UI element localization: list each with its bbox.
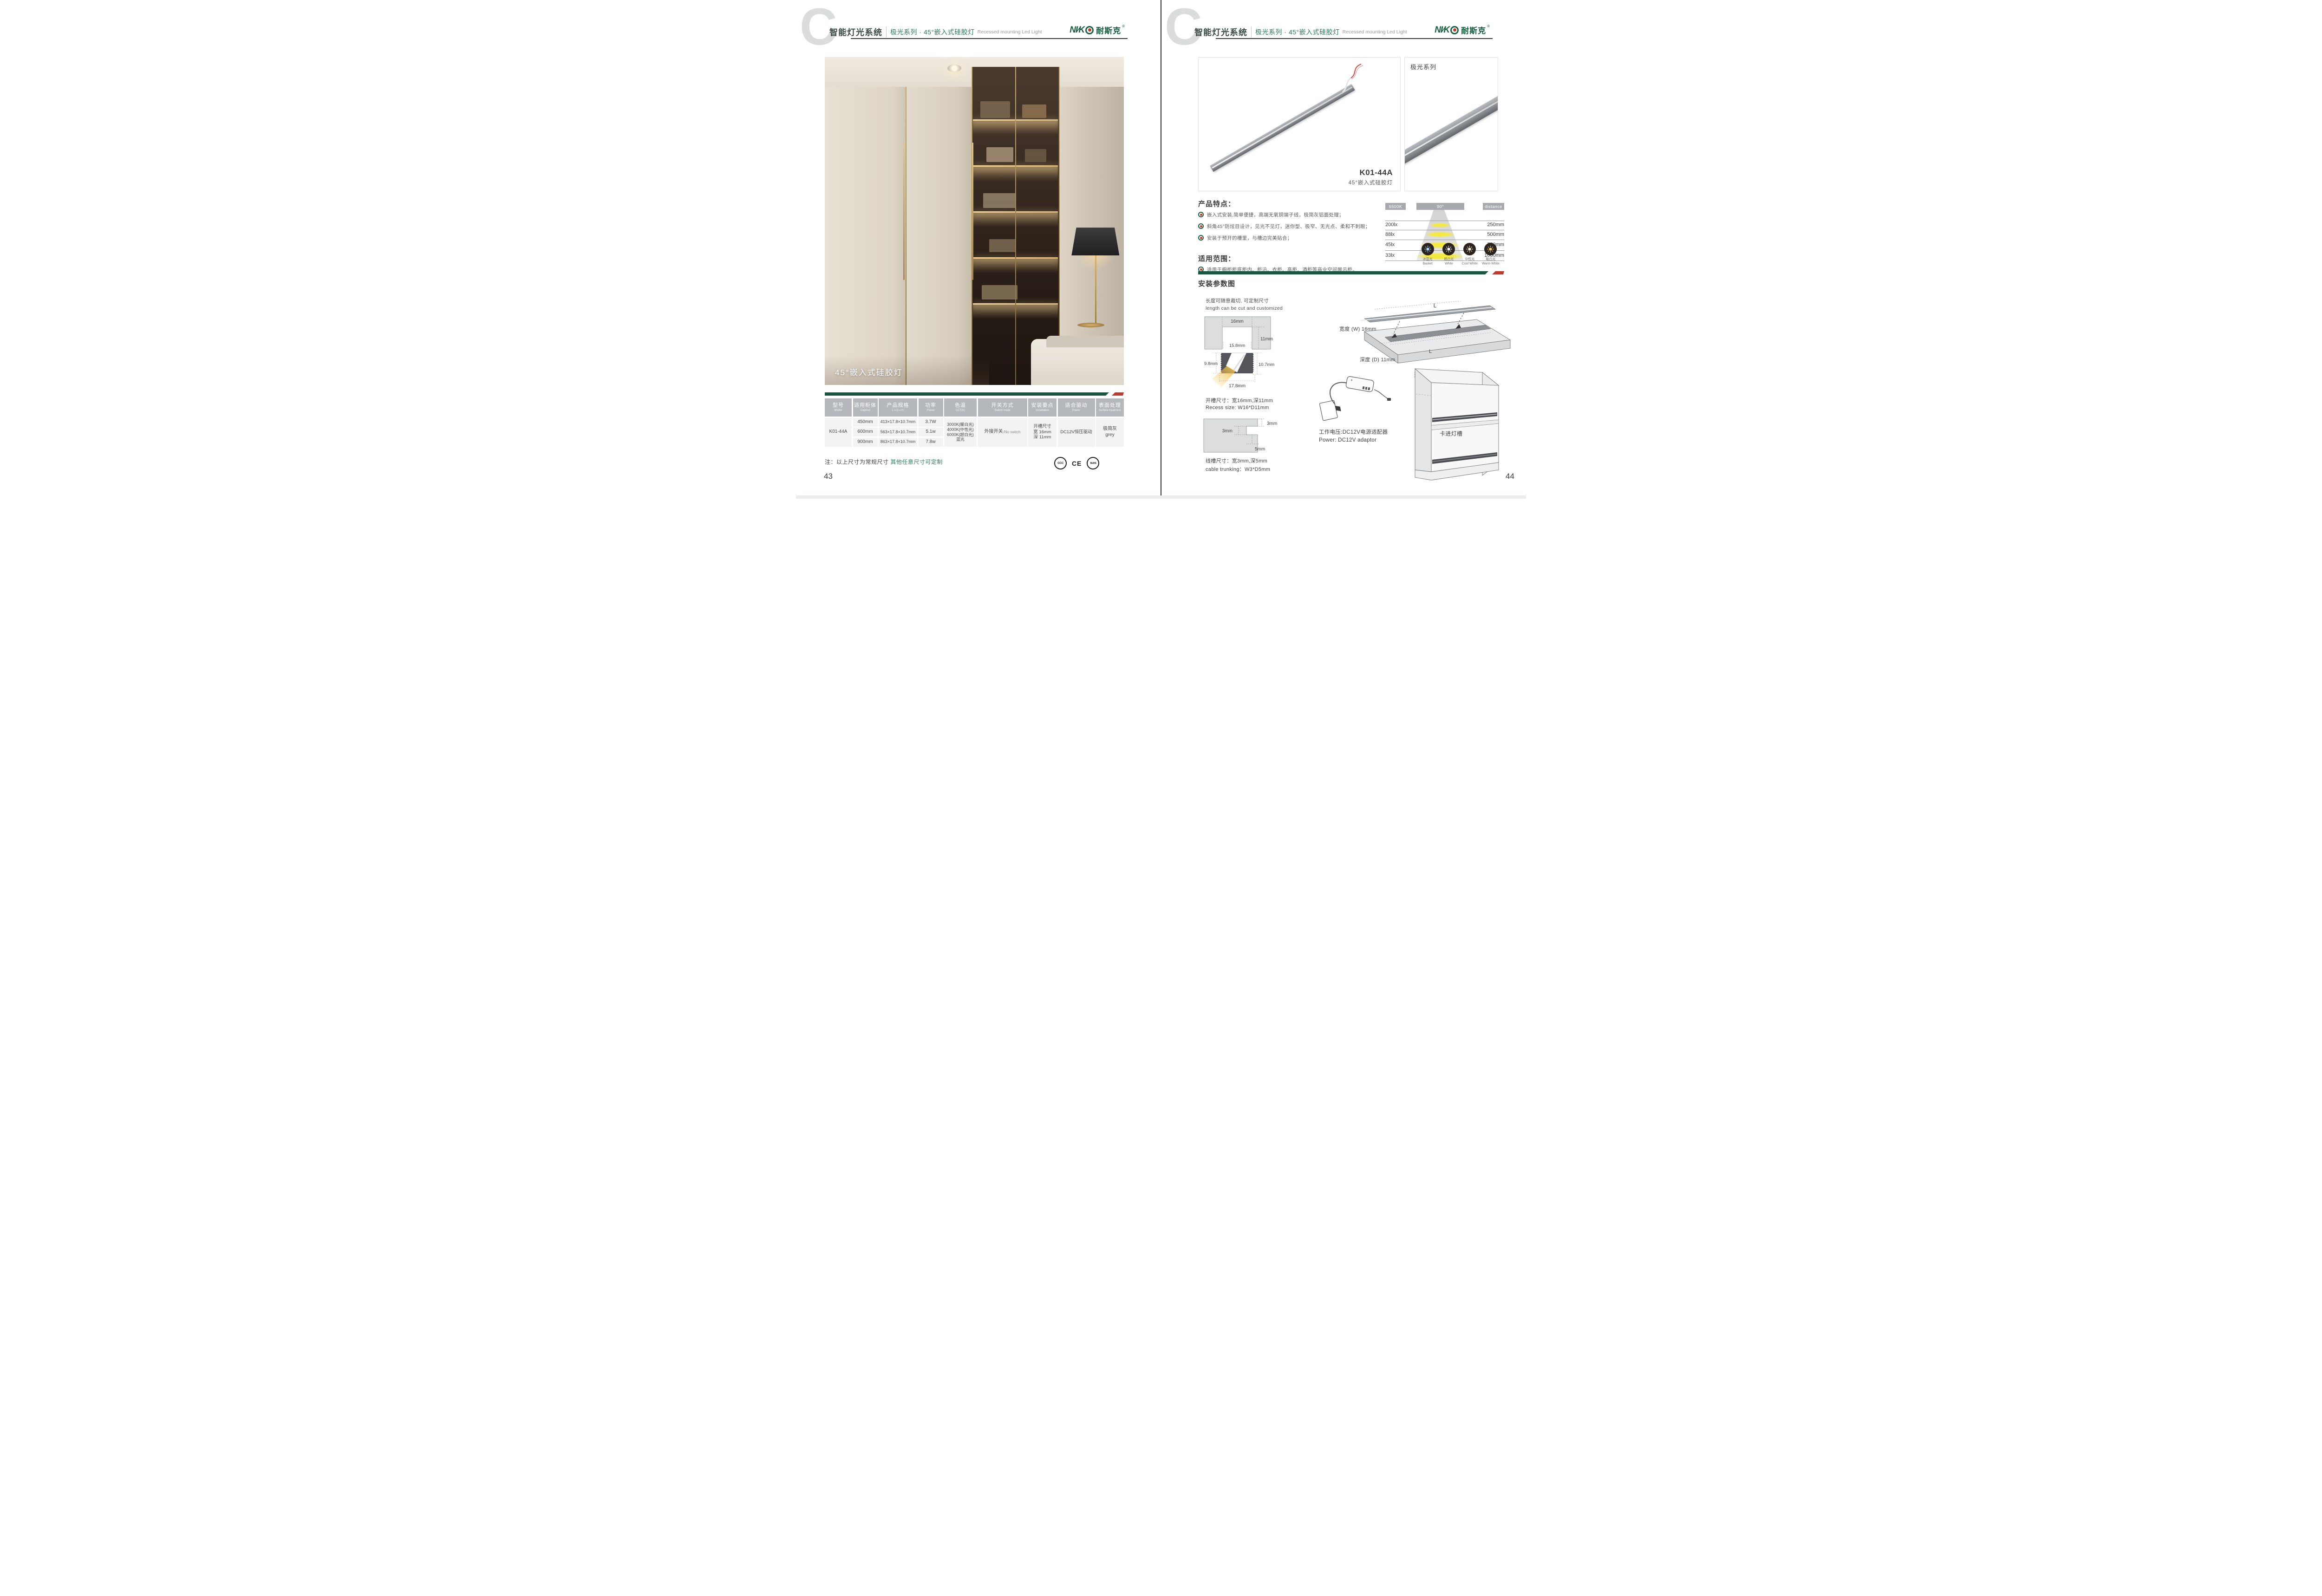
series-title: 极光系列 · 45°嵌入式硅胶灯 xyxy=(890,27,975,37)
distance-label: 500mm xyxy=(1487,232,1504,237)
cell-power: 7.8w xyxy=(919,438,943,447)
divider-red xyxy=(1112,392,1124,396)
col-header-driver: 适合驱动Power xyxy=(1058,398,1095,417)
ceiling-downlight xyxy=(947,65,961,72)
col-header-cct: 色温CCT(K) xyxy=(944,398,977,417)
cct-option-iceblue: 冰蓝光Basket xyxy=(1417,243,1438,266)
chart-gridline xyxy=(1385,221,1504,221)
nisko-logo: NI∕K 耐斯克 ® xyxy=(1435,24,1490,36)
cct-option-coolwhite: 中性光Cool White xyxy=(1459,243,1480,266)
divider-red xyxy=(1492,271,1504,274)
shelf-items xyxy=(983,193,1016,208)
series-subtitle-en: Recessed mounting Led Light xyxy=(978,29,1042,35)
svg-text:3mm: 3mm xyxy=(1267,421,1277,426)
led-profile-bar xyxy=(1210,84,1355,172)
col-header-model: 型号Model xyxy=(825,398,852,417)
rohs-icon: RoHS xyxy=(1087,457,1099,469)
shelf-items xyxy=(1025,149,1046,162)
ce-icon: CE xyxy=(1072,460,1082,467)
sun-icon xyxy=(1463,243,1476,255)
green-red-divider xyxy=(1198,271,1504,274)
page-left: C 智能灯光系统 极光系列 · 45°嵌入式硅胶灯 Recessed mount… xyxy=(796,0,1161,499)
page-number-left: 43 xyxy=(824,472,833,481)
cabinet-frame xyxy=(1015,67,1016,385)
page-number-right: 44 xyxy=(1506,472,1514,481)
chart-gridline xyxy=(1385,240,1504,240)
note-highlight: 其他任意尺寸可定制 xyxy=(890,459,943,465)
feature-item: 嵌入式安装,简单便捷，高端无氧铜端子线，极简灰铝面处理； xyxy=(1198,211,1344,218)
board-depth-label: 深度 (D) 11mm xyxy=(1360,356,1395,363)
cct-caption: 超白光White xyxy=(1444,257,1454,266)
logo-chinese: 耐斯克 xyxy=(1096,24,1121,36)
cell-driver: DC12V恒压驱动 xyxy=(1058,418,1095,447)
col-header-cabinet: 适用柜体Cabinet xyxy=(853,398,878,417)
spec-table: 型号Model 适用柜体Cabinet 产品规格L x D x H 功率Powe… xyxy=(825,398,1125,447)
recess-cross-section-diagram: 16mm 11mm 15.8mm 9.8mm 10.7mm 17.8mm xyxy=(1204,314,1276,389)
door-seam xyxy=(906,87,907,385)
logo-o-icon xyxy=(1085,26,1094,34)
cct-caption: 中性光Cool White xyxy=(1462,257,1478,266)
svg-text:16mm: 16mm xyxy=(1231,319,1244,324)
page-right: C 智能灯光系统 极光系列 · 45°嵌入式硅胶灯 Recessed mount… xyxy=(1161,0,1526,499)
product-photo-profile: 极光系列 xyxy=(1404,57,1498,191)
sun-icon xyxy=(1484,243,1497,255)
cell-install: 开槽尺寸 宽 16mm 深 11mm xyxy=(1028,418,1057,447)
cct-options: 冰蓝光Basket 超白光White 中性光Cool White 暖白光Warm… xyxy=(1417,243,1501,266)
cable-trunking-diagram: 3mm 3mm 5mm xyxy=(1203,415,1282,455)
wardrobe-photo: 45°嵌入式硅胶灯 xyxy=(825,57,1124,385)
features-title: 产品特点： xyxy=(1198,199,1235,208)
col-header-spec: 产品规格L x D x H xyxy=(879,398,917,417)
lux-label: 88lx xyxy=(1385,232,1395,237)
recess-size-zh: 开槽尺寸：宽16mm,深11mm xyxy=(1206,397,1273,404)
product-photo-main: K01-44A 45°嵌入式硅胶灯 xyxy=(1198,57,1401,191)
cell-spec: 563×17.8×10.7mm xyxy=(879,428,917,436)
cell-cct: 3000K(暖白光) 4000K(中性光) 6000K(超白光) 蓝光 xyxy=(944,418,977,447)
brand-title: 智能灯光系统 xyxy=(1194,26,1247,38)
shelf-items xyxy=(1022,104,1046,117)
cell-power: 3.7W xyxy=(919,418,943,427)
shelf-items xyxy=(982,285,1018,300)
product-label: K01-44A 45°嵌入式硅胶灯 xyxy=(1349,168,1393,186)
series-title: 极光系列 · 45°嵌入式硅胶灯 xyxy=(1255,27,1340,37)
feature-item: 斜角45°防炫目设计，见光不见灯，迷你型、极窄、无光点、柔和不刺眼； xyxy=(1198,223,1370,230)
logo-latin: NI∕K xyxy=(1070,25,1084,35)
col-header-surface: 表面处理Surface treatment xyxy=(1096,398,1124,417)
floor-lamp-base xyxy=(1077,323,1104,327)
svg-text:5mm: 5mm xyxy=(1255,447,1265,452)
size-note: 注：以上尺寸为常规尺寸 其他任意尺寸可定制 xyxy=(825,458,943,466)
ccc-icon: CCC xyxy=(1054,457,1067,469)
cut-note-en: length can be cut and customized xyxy=(1206,306,1283,311)
logo-o-icon xyxy=(1450,26,1459,34)
sun-icon xyxy=(1442,243,1455,255)
board-width-label: 宽度 (W) 16mm xyxy=(1339,325,1376,332)
cell-spec: 413×17.8×10.7mm xyxy=(879,418,917,427)
floor-lamp-shade xyxy=(1071,228,1119,255)
svg-text:10.7mm: 10.7mm xyxy=(1259,362,1274,367)
header-separator xyxy=(1251,26,1252,38)
shelf-items xyxy=(989,239,1016,252)
cabinet-label: 卡进灯槽 xyxy=(1440,430,1462,437)
shelf-items xyxy=(986,147,1013,162)
logo-chinese: 耐斯克 xyxy=(1461,24,1486,36)
page-header: 智能灯光系统 极光系列 · 45°嵌入式硅胶灯 Recessed mountin… xyxy=(1194,26,1407,38)
svg-text:15.8mm: 15.8mm xyxy=(1229,343,1245,348)
certification-icons: CCC CE RoHS xyxy=(1054,457,1099,469)
bullet-icon xyxy=(1198,235,1204,241)
cell-cabinet: 900mm xyxy=(853,438,878,447)
cct-badge: 6500K xyxy=(1385,203,1406,210)
product-model: K01-44A xyxy=(1349,168,1393,177)
install-title: 安装参数图 xyxy=(1198,279,1235,288)
lux-label: 33lx xyxy=(1385,253,1395,258)
page-header: 智能灯光系统 极光系列 · 45°嵌入式硅胶灯 Recessed mountin… xyxy=(829,26,1042,38)
registered-mark: ® xyxy=(1122,24,1125,28)
distance-badge: distance xyxy=(1483,203,1504,210)
cell-cabinet: 600mm xyxy=(853,428,878,436)
svg-text:17.8mm: 17.8mm xyxy=(1229,384,1246,389)
cct-caption: 暖白光Warm White xyxy=(1482,257,1500,266)
catalog-spread: C 智能灯光系统 极光系列 · 45°嵌入式硅胶灯 Recessed mount… xyxy=(796,0,1526,499)
cell-cabinet: 450mm xyxy=(853,418,878,427)
brand-title: 智能灯光系统 xyxy=(829,26,882,38)
registered-mark: ® xyxy=(1487,24,1490,28)
bullet-icon xyxy=(1198,212,1204,217)
svg-text:L: L xyxy=(1429,349,1432,354)
cell-spec: 863×17.8×10.7mm xyxy=(879,438,917,447)
cabinet-install-diagram xyxy=(1389,366,1506,486)
power-note-en: Power: DC12V adaptor xyxy=(1319,437,1376,443)
feature-item: 安装于预开的槽里，与槽边完美贴合； xyxy=(1198,235,1292,241)
cell-power: 5.1w xyxy=(919,428,943,436)
floor-lamp-stem xyxy=(1095,255,1096,324)
power-wire xyxy=(1336,61,1392,103)
cell-switch: 外接开关/No switch xyxy=(978,418,1027,447)
recess-size-en: Recess size: W16*D11mm xyxy=(1206,405,1269,410)
light-pool xyxy=(1425,232,1455,237)
series-tag: 极光系列 xyxy=(1410,62,1436,71)
lux-label: 45lx xyxy=(1385,242,1395,248)
led-profile-bar xyxy=(1404,91,1498,171)
cell-model: K01-44A xyxy=(825,418,852,447)
col-header-switch: 开关方式Switch mode xyxy=(978,398,1027,417)
cct-caption: 冰蓝光Basket xyxy=(1423,257,1433,266)
power-note-zh: 工作电压:DC12V电源适配器 xyxy=(1319,428,1388,436)
bottom-edge xyxy=(796,495,1526,499)
wardrobe-door xyxy=(906,87,972,385)
nisko-logo: NI∕K 耐斯克 ® xyxy=(1070,24,1125,36)
svg-text:9.8mm: 9.8mm xyxy=(1204,361,1218,366)
door-handle xyxy=(903,143,905,280)
cut-note-zh: 长度可随意裁切, 可定制尺寸 xyxy=(1206,297,1269,304)
header-separator xyxy=(886,26,887,38)
svg-text:3mm: 3mm xyxy=(1222,429,1233,434)
bed-cushion xyxy=(1046,336,1124,347)
header-rule xyxy=(1216,38,1493,39)
series-subtitle-en: Recessed mounting Led Light xyxy=(1343,29,1407,35)
col-header-power: 功率Power xyxy=(919,398,943,417)
divider-green xyxy=(825,392,1109,396)
lux-label: 200lx xyxy=(1385,222,1397,228)
sun-icon xyxy=(1422,243,1434,255)
green-red-divider xyxy=(825,392,1124,396)
note-prefix: 注：以上尺寸为常规尺寸 xyxy=(825,459,890,465)
scope-title: 适用范围： xyxy=(1198,254,1235,263)
bullet-icon xyxy=(1198,223,1204,229)
shelf-items xyxy=(980,101,1010,117)
photo-caption: 45°嵌入式硅胶灯 xyxy=(835,366,903,378)
trunking-size-en: cable trunking：W3*D5mm xyxy=(1206,465,1270,473)
wardrobe-door xyxy=(825,87,906,385)
beam-angle-badge: 90° xyxy=(1416,203,1464,210)
cct-option-white: 超白光White xyxy=(1438,243,1459,266)
page-fold-line xyxy=(1161,0,1161,499)
svg-text:11mm: 11mm xyxy=(1260,337,1273,342)
chart-gridline xyxy=(1385,230,1504,230)
trunking-size-zh: 线槽尺寸：宽3mm,深5mm xyxy=(1206,457,1267,464)
logo-latin: NI∕K xyxy=(1435,25,1449,35)
distance-label: 250mm xyxy=(1487,222,1504,228)
product-name: 45°嵌入式硅胶灯 xyxy=(1349,179,1393,186)
header-rule xyxy=(851,38,1128,39)
divider-green xyxy=(1198,271,1488,274)
light-pool xyxy=(1429,223,1451,228)
col-header-install: 安装要点Installation xyxy=(1028,398,1057,417)
cell-surface: 极简灰 grey xyxy=(1096,418,1124,447)
cct-option-warmwhite: 暖白光Warm White xyxy=(1480,243,1501,266)
svg-text:L: L xyxy=(1434,302,1437,309)
power-adaptor-diagram xyxy=(1317,369,1391,426)
